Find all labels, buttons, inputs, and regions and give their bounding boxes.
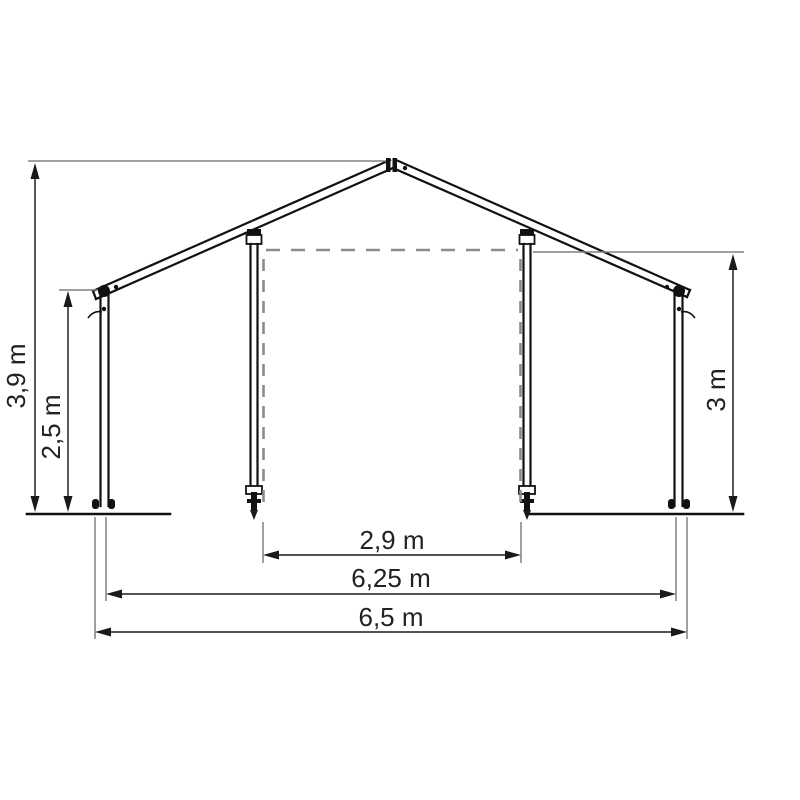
tent-dimension-drawing: 3,9 m 2,5 m 3 m 2,9 m 6,25 m [0,0,800,800]
arrow-down-icon [31,496,40,512]
right-beam-end-cap [687,290,690,297]
left-beam-end-cap [93,291,96,299]
peak-connector [386,158,407,172]
total-width-label: 6,5 m [358,602,423,632]
right-foot-clamp [668,499,675,509]
left-roof-beam [93,160,393,299]
left-eave-bolt-icon [114,285,118,289]
eave-height-label: 2,5 m [36,394,66,459]
entrance-width-label: 2,9 m [359,525,424,555]
arrow-up-icon [729,254,738,270]
arrow-left-icon [263,551,279,560]
dimension-entrance-height: 3 m [533,252,744,512]
peak-bolt-icon [403,166,407,170]
arrow-down-icon [64,496,73,512]
arrow-right-icon [660,590,676,599]
arrow-down-icon [729,496,738,512]
left-outer-post [88,285,118,509]
peak-height-label: 3,9 m [1,343,31,408]
door-opening-dashed-outline [264,250,521,502]
left-door-post-collar [247,235,262,244]
right-eave-connector [673,285,685,297]
left-stake-crossbar [247,499,261,503]
dimension-entrance-width: 2,9 m [263,522,521,563]
right-eave-bolt-icon [665,285,669,289]
dimension-eave-height: 2,5 m [36,290,98,512]
diagram-canvas: 3,9 m 2,5 m 3 m 2,9 m 6,25 m [0,0,800,800]
arrow-up-icon [31,163,40,179]
arrow-up-icon [64,291,73,307]
peak-bracket-left [386,158,391,172]
left-foot-clamp [108,499,115,509]
right-stake-crossbar [520,499,534,503]
right-eave-bolt-icon [677,307,681,311]
post-span-label: 6,25 m [351,563,431,593]
left-stake-tip [250,510,258,520]
left-eave-connector [98,285,110,297]
arrow-left-icon [106,590,122,599]
tent-frame [27,158,743,520]
arrow-left-icon [95,628,111,637]
left-eave-bolt-icon [102,307,106,311]
right-door-post-collar [520,235,535,244]
entrance-height-label: 3 m [701,368,731,411]
left-foot-clamp [92,499,99,509]
right-outer-post [665,285,695,509]
right-beam-top-edge [396,160,690,290]
right-beam-bottom-edge [393,168,687,297]
left-beam-top-edge [93,160,390,291]
right-foot-clamp [683,499,690,509]
arrow-right-icon [671,628,687,637]
left-beam-bottom-edge [96,168,393,299]
right-roof-beam [393,160,690,297]
arrow-right-icon [505,551,521,560]
left-door-post [246,229,262,520]
peak-bracket-right [393,158,398,172]
